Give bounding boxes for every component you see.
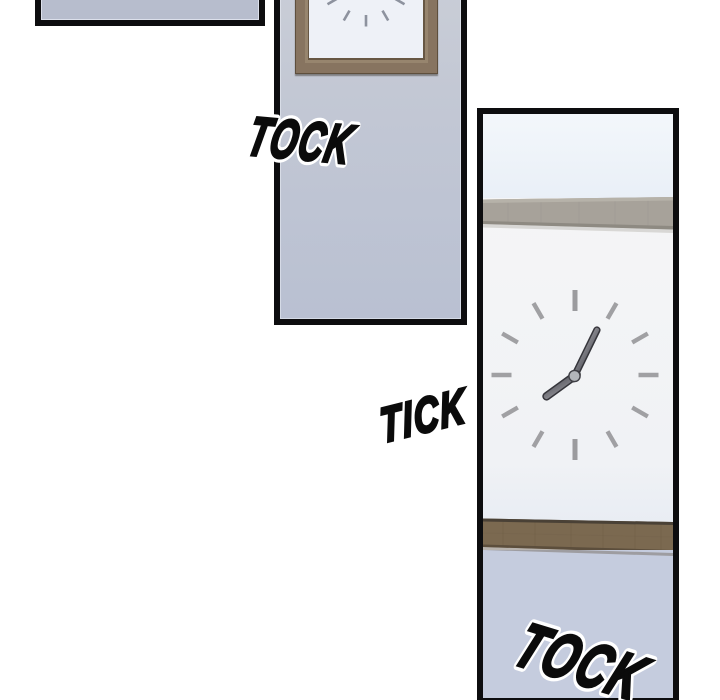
svg-text:TOCK: TOCK (242, 105, 361, 175)
svg-text:TICK: TICK (377, 378, 470, 455)
svg-text:TOCK: TOCK (504, 610, 660, 700)
